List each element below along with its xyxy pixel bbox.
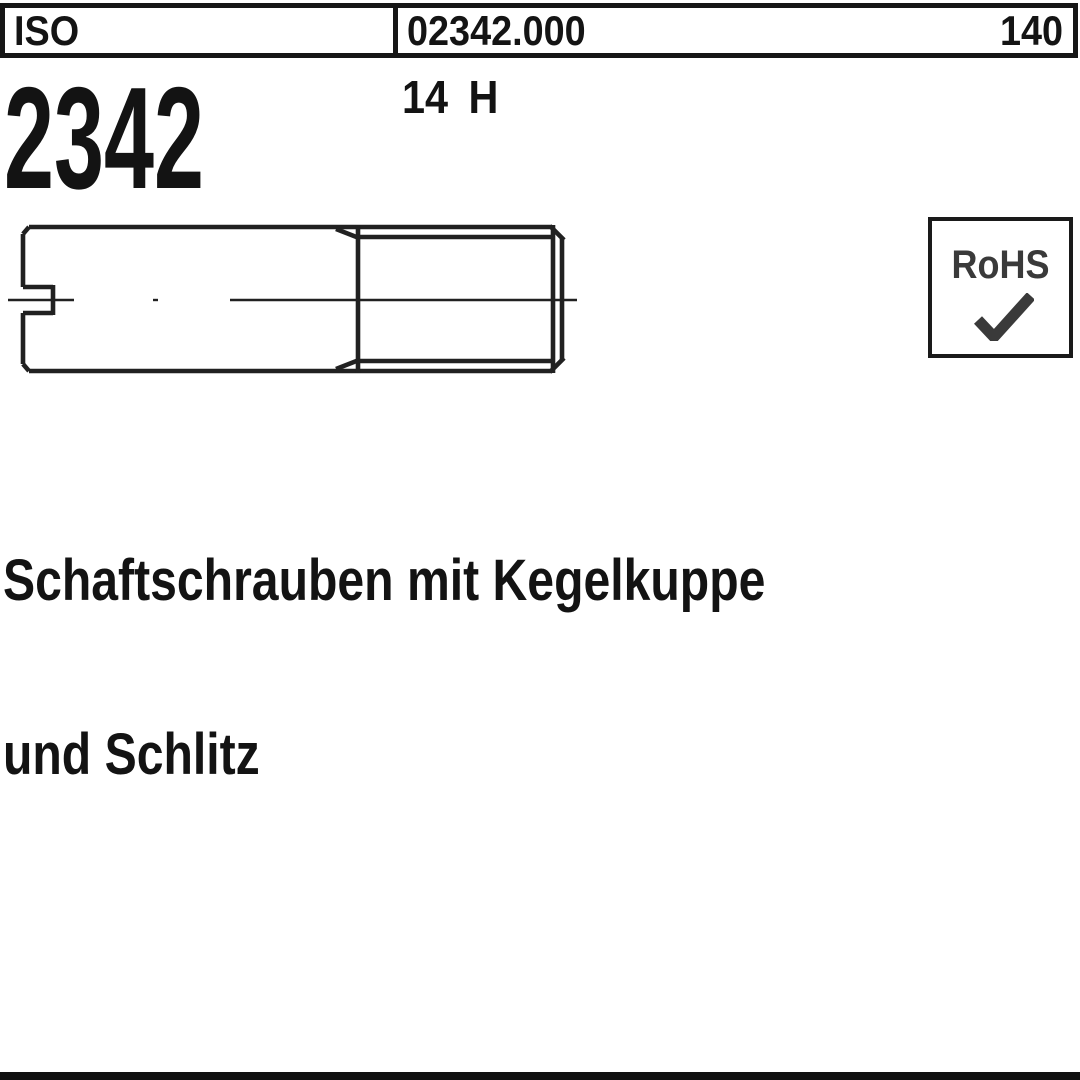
iso-standard-label: ISO	[14, 10, 79, 52]
rohs-label: RoHS	[939, 245, 1062, 285]
article-number: 02342.000	[407, 10, 586, 52]
header-cell-page-number: 140	[993, 8, 1073, 53]
page-number: 140	[1000, 10, 1063, 52]
title-line-1: Schaftschrauben mit Kegelkuppe	[3, 552, 765, 610]
product-title: Schaftschrauben mit Kegelkuppe und Schli…	[3, 436, 765, 900]
material-grade: 14 H	[402, 74, 498, 120]
rohs-badge: RoHS	[928, 217, 1073, 358]
product-image: ISO 02342.000 140 2342 14 H	[0, 0, 1080, 1080]
standard-number-large: 2342	[4, 66, 204, 211]
checkmark-icon	[974, 293, 1034, 341]
title-line-2: und Schlitz	[3, 726, 765, 784]
screw-technical-drawing	[0, 210, 600, 390]
bottom-border-bar	[0, 1072, 1080, 1080]
header-cell-article-number: 02342.000	[398, 8, 993, 53]
header-table: ISO 02342.000 140	[0, 3, 1078, 58]
header-cell-iso: ISO	[5, 8, 398, 53]
